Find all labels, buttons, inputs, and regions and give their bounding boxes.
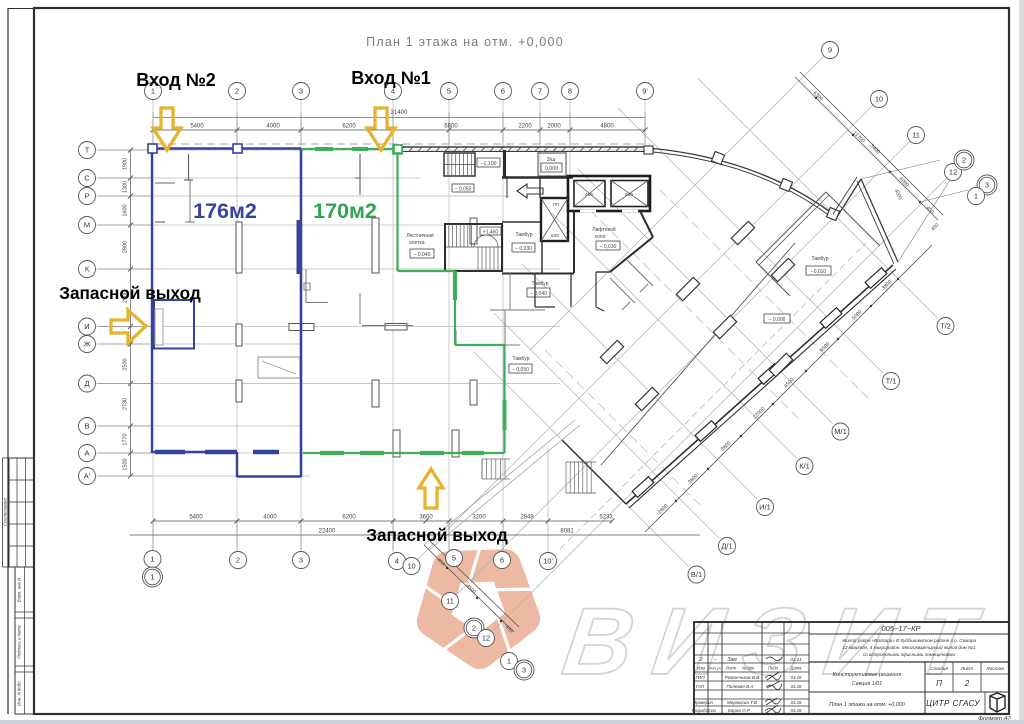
svg-text:И/1: И/1 <box>759 503 771 512</box>
svg-text:630: 630 <box>625 192 633 198</box>
svg-text:План 1 этажа на отм. +0,000: План 1 этажа на отм. +0,000 <box>829 702 904 708</box>
svg-text:3600: 3600 <box>419 515 433 521</box>
svg-text:31400: 31400 <box>391 110 408 116</box>
svg-text:Взам. инв.N: Взам. инв.N <box>17 577 22 602</box>
svg-text:Ж: Ж <box>84 340 91 349</box>
svg-text:01.21: 01.21 <box>790 657 802 662</box>
svg-text:Лист: Лист <box>960 666 973 672</box>
svg-text:− 0.050: − 0.050 <box>455 187 472 193</box>
svg-text:1900: 1900 <box>123 158 129 170</box>
svg-text:Подп: Подп <box>768 666 779 671</box>
svg-text:6200: 6200 <box>342 515 356 521</box>
svg-text:К: К <box>85 265 90 274</box>
svg-text:Подпись и дата: Подпись и дата <box>17 625 22 659</box>
svg-text:1: 1 <box>974 192 978 201</box>
svg-text:03.18: 03.18 <box>791 708 803 713</box>
svg-text:03.18: 03.18 <box>791 684 803 689</box>
svg-text:Стадия: Стадия <box>930 666 948 672</box>
svg-text:22000: 22000 <box>752 406 767 421</box>
svg-text:А: А <box>84 449 89 458</box>
svg-text:Жилой район «Волгари» В Куйбыш: Жилой район «Волгари» В Куйбышевском рай… <box>841 637 976 643</box>
svg-text:Тамбур: Тамбур <box>513 356 530 362</box>
svg-text:0,000: 0,000 <box>545 166 558 172</box>
svg-text:Изм: Изм <box>697 666 705 671</box>
svg-text:− 0,050: − 0,050 <box>512 367 529 373</box>
svg-text:4300: 4300 <box>812 90 824 102</box>
svg-text:5: 5 <box>452 554 456 563</box>
svg-text:2500: 2500 <box>123 358 129 370</box>
svg-text:5233: 5233 <box>599 515 613 521</box>
svg-text:Мержасин Т.В: Мержасин Т.В <box>727 700 757 705</box>
svg-text:Согласовано: Согласовано <box>3 498 8 526</box>
svg-text:2200: 2200 <box>518 124 532 130</box>
svg-text:клетка: клетка <box>409 240 424 246</box>
svg-text:6000: 6000 <box>898 176 910 188</box>
svg-text:22400: 22400 <box>319 529 336 535</box>
svg-text:К/1: К/1 <box>799 462 810 471</box>
svg-text:2730: 2730 <box>123 398 129 410</box>
svg-text:4000: 4000 <box>893 188 903 201</box>
svg-text:В: В <box>84 422 89 431</box>
svg-text:Т/2: Т/2 <box>940 322 951 331</box>
svg-text:11700: 11700 <box>852 130 866 144</box>
svg-text:1: 1 <box>150 555 154 564</box>
svg-text:Вход №2: Вход №2 <box>136 70 216 90</box>
svg-text:Секция 1/01: Секция 1/01 <box>852 681 882 687</box>
svg-text:Кол.уч: Кол.уч <box>709 667 720 671</box>
svg-text:03.18: 03.18 <box>791 700 803 705</box>
svg-text:−0,010: −0,010 <box>811 269 827 275</box>
svg-text:Карна О.Р: Карна О.Р <box>728 708 751 713</box>
svg-text:11: 11 <box>446 597 454 606</box>
svg-text:4: 4 <box>395 557 399 566</box>
svg-text:М/1: М/1 <box>834 427 847 436</box>
svg-text:Запасной выход: Запасной выход <box>59 283 201 303</box>
svg-text:6800: 6800 <box>444 124 458 130</box>
svg-text:−1,100: −1,100 <box>480 161 496 167</box>
svg-text:10: 10 <box>407 562 415 571</box>
svg-text:Вход №1: Вход №1 <box>351 68 431 88</box>
svg-text:176м2: 176м2 <box>193 199 257 223</box>
svg-text:2: 2 <box>235 87 239 96</box>
svg-text:2: 2 <box>962 156 966 165</box>
svg-text:1: 1 <box>150 573 154 582</box>
svg-text:Тамбур: Тамбур <box>516 232 533 238</box>
svg-text:11: 11 <box>912 131 920 140</box>
svg-text:Д/1: Д/1 <box>721 542 732 551</box>
svg-text:№ док: № док <box>742 666 755 671</box>
svg-text:3: 3 <box>522 666 526 675</box>
svg-text:Лист: Лист <box>725 666 737 671</box>
svg-text:12: 12 <box>482 634 490 643</box>
svg-text:1500: 1500 <box>123 458 129 470</box>
svg-text:8081: 8081 <box>560 529 574 535</box>
svg-text:И: И <box>84 322 89 331</box>
svg-text:1770: 1770 <box>123 433 129 445</box>
svg-text:Д: Д <box>84 379 89 388</box>
svg-text:2: 2 <box>699 657 703 663</box>
svg-text:400: 400 <box>585 192 593 198</box>
svg-text:4000: 4000 <box>266 124 280 130</box>
svg-text:План 1 этажа на отм. +0,000: План 1 этажа на отм. +0,000 <box>366 35 564 49</box>
svg-text:ГАП: ГАП <box>696 684 705 689</box>
svg-text:2800: 2800 <box>123 241 129 253</box>
svg-text:03.18: 03.18 <box>791 675 803 680</box>
svg-text:2848: 2848 <box>520 515 534 521</box>
svg-text:5400: 5400 <box>190 124 204 130</box>
svg-text:12: 12 <box>949 168 957 177</box>
svg-text:Романчиков В.В: Романчиков В.В <box>725 675 760 680</box>
svg-text:− 0,030: − 0,030 <box>515 246 532 252</box>
svg-text:Разработал: Разработал <box>692 708 717 713</box>
svg-text:− 0,000: − 0,000 <box>769 317 786 323</box>
svg-text:− 0,040: − 0,040 <box>530 291 547 297</box>
svg-text:со встроенными офисными помеще: со встроенными офисными помещениями <box>863 652 956 657</box>
svg-text:Листов: Листов <box>985 666 1004 672</box>
svg-text:2: 2 <box>472 624 476 633</box>
svg-text:Конструктивные решения: Конструктивные решения <box>833 672 902 678</box>
svg-text:− 0,030: − 0,030 <box>600 244 617 250</box>
svg-text:9': 9' <box>642 87 648 96</box>
svg-text:Тамбур: Тамбур <box>532 281 549 287</box>
svg-text:Р: Р <box>84 192 89 201</box>
svg-text:Зам: Зам <box>727 657 737 663</box>
svg-text:3200: 3200 <box>472 515 486 521</box>
svg-text:Т: Т <box>85 146 90 155</box>
svg-text:−: − <box>714 657 717 663</box>
svg-text:2: 2 <box>964 679 970 688</box>
svg-text:3: 3 <box>299 556 303 565</box>
svg-text:6200: 6200 <box>342 124 356 130</box>
svg-text:ЦИТР СГАСУ: ЦИТР СГАСУ <box>926 699 980 708</box>
svg-text:8: 8 <box>568 87 572 96</box>
svg-text:С: С <box>84 174 90 183</box>
svg-text:Дата: Дата <box>789 666 802 671</box>
svg-text:450: 450 <box>930 222 940 232</box>
svg-text:3/ш: 3/ш <box>547 157 556 163</box>
svg-text:005−17−КР: 005−17−КР <box>881 624 920 633</box>
svg-text:3400: 3400 <box>869 143 881 155</box>
svg-text:6: 6 <box>501 87 505 96</box>
svg-text:холл: холл <box>595 234 606 240</box>
svg-text:Запасной выход: Запасной выход <box>366 525 508 545</box>
svg-text:Лестничная: Лестничная <box>406 233 434 239</box>
svg-text:4000: 4000 <box>263 515 277 521</box>
svg-text:А': А' <box>84 472 91 481</box>
svg-text:В/1: В/1 <box>691 570 702 579</box>
svg-text:1300: 1300 <box>123 181 129 193</box>
svg-text:Проверил: Проверил <box>693 700 714 705</box>
svg-text:170м2: 170м2 <box>313 199 377 223</box>
svg-text:Т/1: Т/1 <box>886 377 897 386</box>
svg-text:+1,460: +1,460 <box>483 230 499 236</box>
svg-text:1600: 1600 <box>123 204 129 216</box>
svg-text:12 квартал, 4 микрорайон. Мног: 12 квартал, 4 микрорайон. Многоквартирны… <box>842 644 976 650</box>
svg-text:1: 1 <box>507 657 511 666</box>
svg-text:2: 2 <box>236 556 240 565</box>
svg-text:ГИП: ГИП <box>695 675 705 680</box>
svg-text:ПП: ПП <box>553 202 559 207</box>
svg-text:М: М <box>84 221 90 230</box>
svg-text:5400: 5400 <box>189 515 203 521</box>
svg-text:5: 5 <box>447 87 451 96</box>
svg-text:3: 3 <box>985 181 989 190</box>
svg-text:− 0,040: − 0,040 <box>414 252 431 258</box>
svg-text:10: 10 <box>875 95 883 104</box>
svg-text:Инв. N подл.: Инв. N подл. <box>17 680 22 706</box>
svg-text:4800: 4800 <box>600 124 614 130</box>
svg-text:630: 630 <box>551 233 559 239</box>
svg-text:П: П <box>936 679 942 688</box>
svg-text:3: 3 <box>299 87 303 96</box>
svg-text:Тамбур: Тамбур <box>812 256 829 262</box>
svg-text:Полевая В.А: Полевая В.А <box>727 684 754 689</box>
svg-text:6: 6 <box>500 556 504 565</box>
svg-text:10': 10' <box>543 557 553 566</box>
svg-text:2000: 2000 <box>547 124 561 130</box>
svg-text:9: 9 <box>828 46 832 55</box>
svg-text:7: 7 <box>538 87 542 96</box>
svg-text:Лифтовой: Лифтовой <box>592 226 615 233</box>
